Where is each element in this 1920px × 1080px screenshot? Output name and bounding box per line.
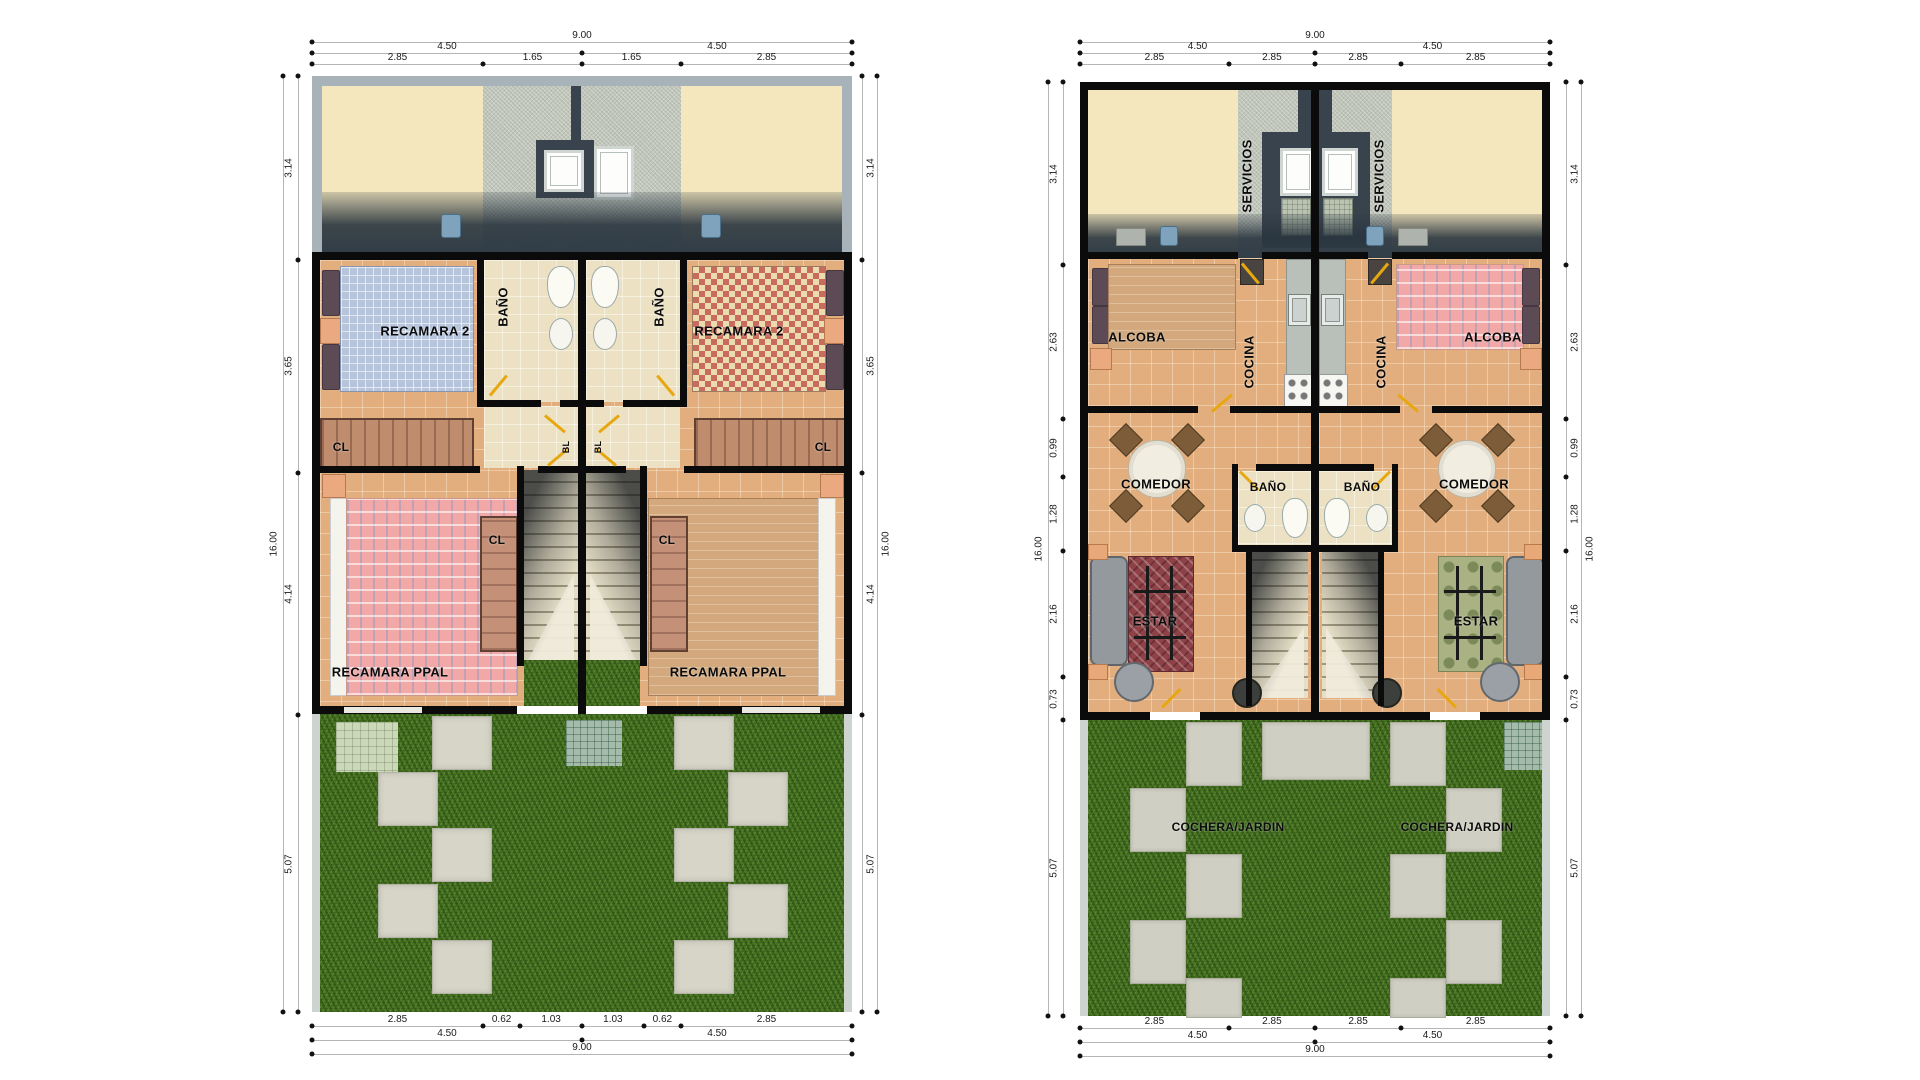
roof-shadow [322,192,842,252]
dimension-tick [1046,1014,1051,1019]
dimension-label: 3.65 [284,357,295,376]
dimension-label: 2.85 [1262,1016,1281,1027]
bath-wall-a [477,400,541,407]
nightstand [1090,348,1112,370]
dimension-label: 4.50 [1423,1030,1442,1041]
window-sill-a [344,707,422,713]
dimension-label: 9.00 [1305,1044,1324,1055]
dimension-line [1080,1056,1550,1057]
dimension-label: 4.50 [1188,1030,1207,1041]
dimension-tick [1548,1026,1553,1031]
dimension-tick [1313,62,1318,67]
side-table [1524,544,1544,560]
room-label-cochera-a: COCHERA/JARDIN [1172,820,1285,834]
room-label-recamara-ppal-b: RECAMARA PPAL [670,665,787,680]
dimension-tick [1226,1026,1231,1031]
room-label-bano-pb-b: BAÑO [1344,480,1381,494]
garden-wall-r [1542,720,1550,1016]
side-table [1088,664,1108,680]
dimension-tick [481,1024,486,1029]
dimension-label: 4.14 [866,585,877,604]
stairwell-wall-a [517,466,524,666]
dimension-tick [518,1024,523,1029]
dimension-line [877,76,878,1012]
dimension-tick [281,1010,286,1015]
dimension-label: 4.50 [437,1028,456,1039]
wall-right [1542,82,1550,720]
dimension-tick [860,1010,865,1015]
dimension-tick [1579,80,1584,85]
dimension-tick [860,713,865,718]
wall-servicios-c [1392,252,1542,259]
dimension-tick [1226,62,1231,67]
dimension-label: 2.85 [388,1014,407,1025]
garden-wall-l [1080,720,1088,1016]
wall-party [578,252,586,714]
dimension-label: 2.85 [757,1014,776,1025]
dimension-label: 3.14 [866,158,877,177]
dimension-label: 5.07 [284,854,295,873]
room-label-cocina-b: COCINA [1374,335,1389,388]
dimension-label: 2.85 [1348,52,1367,63]
stepping-stone [378,884,438,938]
stairs-shadow-b [586,470,640,664]
stair-wall [1378,548,1384,706]
dimension-label: 9.00 [572,30,591,41]
garden-mat [566,720,622,766]
dimension-line [1581,82,1582,1016]
dimension-tick [481,62,486,67]
bidet-a [549,318,573,350]
dimension-tick [679,62,684,67]
vent [1366,226,1384,246]
drive-pad [1186,978,1242,1018]
dimension-label: 2.16 [1049,605,1060,624]
wall-alcoba-c [1432,406,1542,413]
room-label-alcoba-a: ALCOBA [1108,330,1165,345]
dimension-tick [310,1024,315,1029]
dimension-tick [850,40,855,45]
bath-wall [1392,464,1398,552]
garden-wall-l [312,714,320,1012]
dimension-tick [850,62,855,67]
dimension-label: 4.50 [437,41,456,52]
bath-wall [1256,464,1314,471]
bath-wall-b [623,400,687,407]
dimension-tick [860,257,865,262]
dimension-tick [1061,80,1066,85]
room-label-recamara-ppal-a: RECAMARA PPAL [332,665,449,680]
roof-vent-a [441,214,461,238]
dimension-tick [1061,416,1066,421]
dimension-tick [875,74,880,79]
dimension-tick [1078,40,1083,45]
basin-b [1366,504,1388,532]
planter [1372,678,1402,708]
room-label-recamara2-b: RECAMARA 2 [694,324,783,339]
dimension-label: 9.00 [572,1042,591,1053]
side-table [1088,544,1108,560]
bath-wall [1232,545,1314,552]
table-frame [1444,636,1496,639]
dimension-label: 2.85 [388,52,407,63]
water-heater-b [1322,148,1358,196]
nightstand [320,318,342,344]
room-label-estar-a: ESTAR [1133,614,1178,629]
dimension-tick [1061,549,1066,554]
wall-servicios-b [1262,252,1368,259]
room-label-cl-1: CL [333,440,350,454]
dimension-tick [296,713,301,718]
stairs-shadow-a [524,470,578,664]
dimension-tick [1548,1040,1553,1045]
dimension-tick [1061,1014,1066,1019]
dimension-tick [1579,1014,1584,1019]
stepping-stone [378,772,438,826]
mid-wall-b2 [586,466,626,473]
stairs-shadow-b [1322,548,1378,698]
dimension-tick [296,74,301,79]
armchair-a [1114,662,1154,702]
dimension-label: 1.65 [622,52,641,63]
dimension-label: 2.63 [1049,332,1060,351]
dimension-tick [860,74,865,79]
dimension-label: 1.03 [603,1014,622,1025]
dimension-tick [641,1024,646,1029]
dimension-tick [296,257,301,262]
stepping-stone [674,940,734,994]
pillow [322,270,340,316]
dimension-tick [875,1010,880,1015]
dimension-tick [1078,1054,1083,1059]
stepping-stone [432,716,492,770]
dimension-tick [850,1052,855,1057]
stepping-stone [674,828,734,882]
dimension-label: 3.65 [866,357,877,376]
side-table [1524,664,1544,680]
room-label-alcoba-b: ALCOBA [1464,330,1521,345]
drive-pad [1186,854,1242,918]
dimension-label: 2.85 [1466,52,1485,63]
room-label-comedor-a: COMEDOR [1121,477,1191,492]
dimension-label: 2.85 [1262,52,1281,63]
wall-left [312,252,320,714]
bath-wall [1316,545,1398,552]
floorplan-canvas: 9.004.504.502.851.651.652.852.850.621.03… [0,0,1920,1080]
dimension-tick [1548,1054,1553,1059]
stepping-stone [432,828,492,882]
dimension-tick [1564,549,1569,554]
dimension-label: 1.28 [1049,504,1060,523]
stepping-stone [728,772,788,826]
dimension-tick [1564,718,1569,723]
dimension-tick [310,1038,315,1043]
wall-alcoba-a [1088,406,1198,413]
dimension-tick [1548,40,1553,45]
roof-divider [571,86,581,146]
dimension-label: 5.07 [1570,858,1581,877]
bath-partition-b [680,260,687,406]
mid-wall-a2 [538,466,578,473]
wall-bottom-2 [1200,712,1430,720]
kitchen-sink-a [1288,294,1311,326]
dimension-label: 0.73 [1570,689,1581,708]
room-label-cochera-b: COCHERA/JARDIN [1401,820,1514,834]
room-label-cl-3: CL [489,533,506,547]
room-label-comedor-b: COMEDOR [1439,477,1509,492]
dimension-tick [1564,675,1569,680]
appliance [1116,228,1146,246]
dimension-tick [296,1010,301,1015]
nightstand [820,474,844,498]
room-label-cocina-a: COCINA [1242,335,1257,388]
dimension-tick [580,62,585,67]
dimension-tick [1399,1026,1404,1031]
garden-mat [1504,722,1542,770]
dimension-line [312,1054,852,1055]
dimension-tick [1078,1040,1083,1045]
room-label-bano-b: BAÑO [652,287,667,326]
dimension-label: 2.85 [1348,1016,1367,1027]
pillow [1522,306,1540,344]
dimension-tick [310,1052,315,1057]
dimension-tick [1313,51,1318,56]
window-sill-b [742,707,820,713]
room-label-bano-a: BAÑO [496,287,511,326]
dimension-label: 0.99 [1049,438,1060,457]
dimension-label: 5.07 [1049,858,1060,877]
dimension-tick [281,74,286,79]
wall-servicios-a [1088,252,1238,259]
bath-wall-b2 [586,400,604,407]
armchair-b [1480,662,1520,702]
bath-wall [1232,464,1238,552]
room-label-cl-4: CL [659,533,676,547]
wall-right [844,252,852,714]
pillow [1522,268,1540,306]
dimension-tick [1313,1026,1318,1031]
bath-wall-a2 [560,400,578,407]
dimension-line [1080,42,1550,43]
stepping-stone [432,940,492,994]
dimension-label: 2.85 [1145,1016,1164,1027]
dimension-line [862,76,863,1012]
dimension-tick [580,1024,585,1029]
dimension-tick [1078,51,1083,56]
sofa-b [1506,556,1544,666]
wall-left [1080,82,1088,720]
stove-a [1284,374,1313,408]
dimension-tick [679,1024,684,1029]
skylight-a [544,150,584,192]
dimension-tick [310,51,315,56]
dimension-label: 2.85 [757,52,776,63]
room-label-bl-a: BL [561,441,571,454]
pillow [826,344,844,390]
dimension-tick [1061,675,1066,680]
table-frame [1134,590,1186,593]
bath-partition-a [477,260,484,406]
dimension-label: 4.50 [707,1028,726,1039]
dimension-tick [1548,51,1553,56]
dimension-tick [1078,62,1083,67]
dimension-label: 4.50 [1188,41,1207,52]
dimension-label: 9.00 [1305,30,1324,41]
dimension-tick [1548,62,1553,67]
wall-party [1311,82,1319,720]
stepping-stone [674,716,734,770]
drive-pad [1390,722,1446,786]
dimension-label: 3.14 [1570,164,1581,183]
pillow [322,344,340,390]
dimension-tick [1061,263,1066,268]
table-frame [1444,590,1496,593]
stairs-shadow-a [1252,548,1308,698]
dimension-label: 2.63 [1570,332,1581,351]
dimension-label: 1.65 [523,52,542,63]
garden-mat [336,722,398,772]
dimension-tick [1399,62,1404,67]
dimension-tick [1564,80,1569,85]
stairwell-wall-b [640,466,647,666]
dimension-label: 4.14 [284,585,295,604]
dimension-tick [1061,474,1066,479]
dimension-tick [1564,416,1569,421]
dimension-tick [296,471,301,476]
dimension-label: 16.00 [1034,536,1045,561]
dimension-tick [850,51,855,56]
dimension-label: 0.62 [653,1014,672,1025]
dimension-tick [860,471,865,476]
dimension-tick [1078,1026,1083,1031]
kitchen-sink-b [1321,294,1344,326]
bed-edge [818,498,836,696]
dimension-tick [1564,263,1569,268]
mid-wall-b [684,466,844,473]
drive-pad [1186,722,1242,786]
dimension-label: 0.99 [1570,438,1581,457]
room-label-estar-b: ESTAR [1454,614,1499,629]
dimension-label: 1.03 [541,1014,560,1025]
drive-pad [1390,978,1446,1018]
drive-pad [1390,854,1446,918]
sofa-a [1090,556,1128,666]
dimension-tick [850,1024,855,1029]
dimension-label: 4.50 [707,41,726,52]
nightstand [824,318,846,344]
nightstand [322,474,346,498]
drive-pad [1262,722,1370,780]
dimension-label: 16.00 [881,531,892,556]
dimension-label: 0.62 [492,1014,511,1025]
room-label-servicios-a: SERVICIOS [1240,139,1255,212]
dimension-tick [1564,474,1569,479]
stair-wall [1246,548,1252,706]
dimension-label: 16.00 [269,531,280,556]
dimension-label: 2.85 [1466,1016,1485,1027]
pillow [826,270,844,316]
dimension-tick [850,1038,855,1043]
dimension-label: 2.85 [1145,52,1164,63]
dimension-label: 3.14 [284,158,295,177]
mid-wall-a [320,466,480,473]
vent [1160,226,1178,246]
stepping-stone [728,884,788,938]
wall-bottom-1 [1080,712,1150,720]
stove-b [1319,374,1348,408]
dimension-tick [310,40,315,45]
dimension-label: 1.28 [1570,504,1581,523]
drive-pad [1130,920,1186,984]
dimension-label: 3.14 [1049,164,1060,183]
room-label-recamara2-a: RECAMARA 2 [380,324,469,339]
garden-wall-r [844,714,852,1012]
basin-a [1244,504,1266,532]
dimension-label: 5.07 [866,854,877,873]
dimension-line [298,76,299,1012]
dimension-label: 0.73 [1049,689,1060,708]
dimension-tick [310,62,315,67]
decor-layer: 9.004.504.502.851.651.652.852.850.621.03… [0,0,1920,1080]
wall-bottom-3 [1480,712,1550,720]
wall-alcoba-b [1230,406,1400,413]
dimension-tick [1564,1014,1569,1019]
dimension-tick [1046,80,1051,85]
dimension-label: 2.16 [1570,605,1581,624]
appliance [1398,228,1428,246]
dimension-label: 16.00 [1585,536,1596,561]
dimension-tick [580,51,585,56]
room-label-servicios-b: SERVICIOS [1372,139,1387,212]
dimension-label: 4.50 [1423,41,1442,52]
bath-wall [1316,464,1374,471]
bidet-b [593,318,617,350]
roof-vent-b [701,214,721,238]
nightstand [1520,348,1542,370]
dimension-tick [1061,718,1066,723]
room-label-bl-b: BL [593,441,603,454]
table-frame [1134,636,1186,639]
dimension-line [312,42,852,43]
room-label-bano-pb-a: BAÑO [1250,480,1287,494]
drive-pad [1446,920,1502,984]
room-label-cl-2: CL [815,440,832,454]
